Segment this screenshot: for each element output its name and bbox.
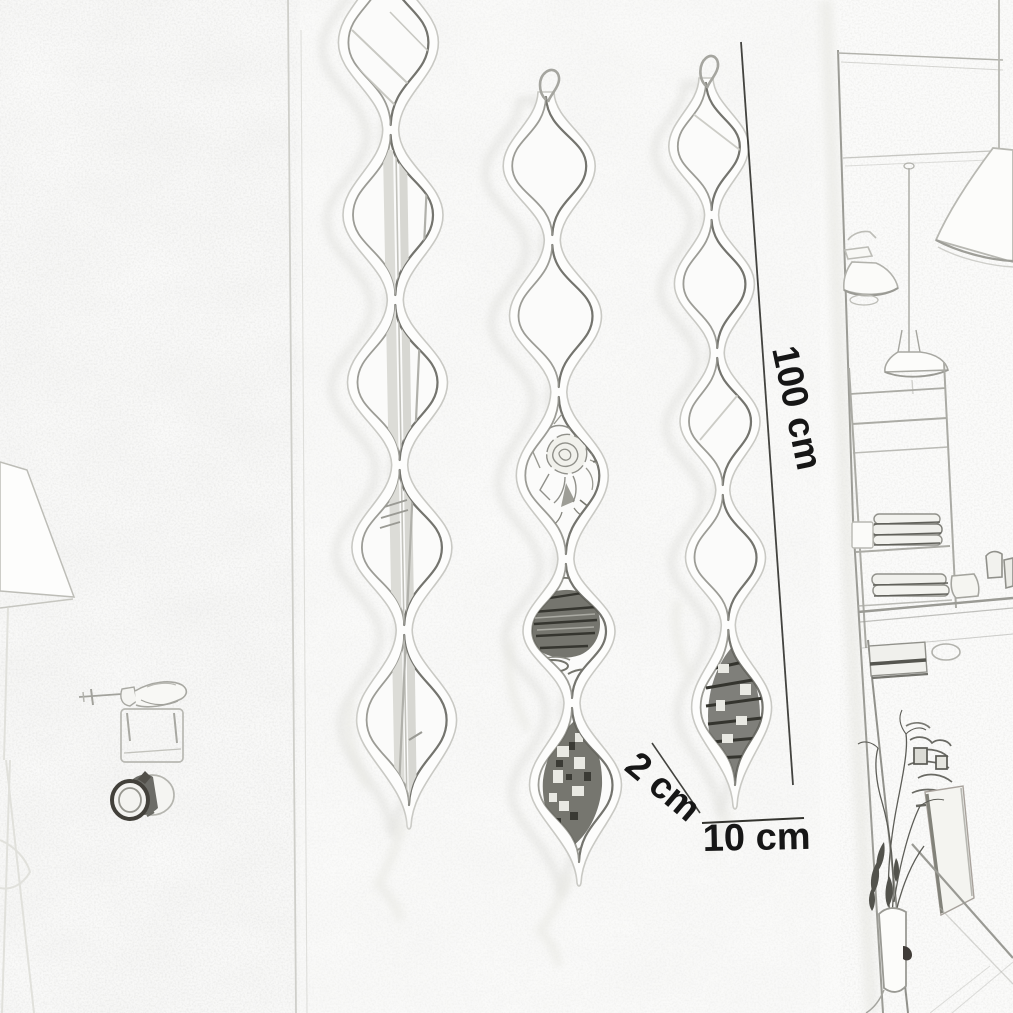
svg-text:10 cm: 10 cm: [702, 816, 811, 860]
